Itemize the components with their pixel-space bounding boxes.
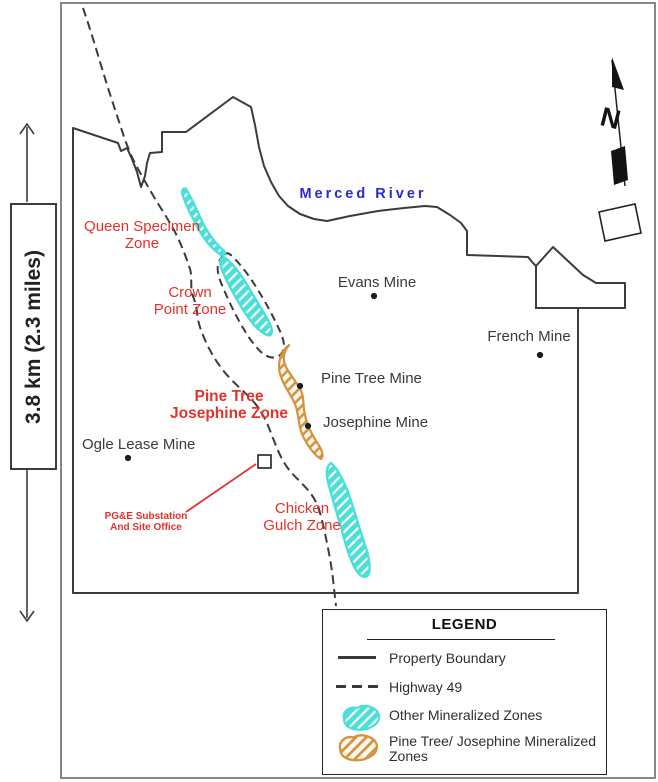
ogle-lease-mine-dot [125,455,131,461]
north-arrow-icon: N [597,57,628,186]
queen-specimen-zone-label: Queen Specimen Zone [84,218,200,252]
substation-line1: PG&E Substation [105,511,188,522]
pine-tree-josephine-zone-label: Pine Tree Josephine Zone [170,388,288,422]
legend-item-other-zones: Other Mineralized Zones [389,708,542,723]
legend-title-underline [367,639,555,640]
legend-solid-line-swatch [338,656,376,659]
legend-title: LEGEND [323,616,606,633]
pine-tree-mine-label: Pine Tree Mine [321,370,422,387]
chicken-gulch-line1: Chicken [263,500,341,517]
crown-point-zone-label: Crown Point Zone [154,284,227,318]
legend-cyan-blob-swatch [339,703,383,733]
pine-tree-mine-dot [297,383,303,389]
josephine-mine-label: Josephine Mine [323,414,428,431]
substation-leader-line [186,464,256,512]
legend-orange-blob-swatch [335,732,381,764]
legend: LEGEND Property Boundary Highway 49 Othe… [322,609,607,775]
substation-line2: And Site Office [105,522,188,533]
evans-mine-label: Evans Mine [338,274,416,291]
chicken-gulch-line2: Gulch Zone [263,517,341,534]
french-mine-label: French Mine [487,328,570,345]
survey-square [599,204,641,241]
legend-item-property-boundary: Property Boundary [389,651,506,666]
scale-label: 3.8 km (2.3 miles) [22,250,46,424]
crown-point-line2: Point Zone [154,301,227,318]
merced-river-label: Merced River [299,186,426,203]
ptj-line1: Pine Tree [170,388,288,405]
queen-specimen-line2: Zone [84,235,200,252]
property-boundary-east-parcel [536,266,578,308]
crown-point-zone-area [220,258,271,336]
chicken-gulch-zone-label: Chicken Gulch Zone [263,500,341,534]
mine-property-map: N 3.8 km (2.3 miles) Merced River Queen … [0,0,658,782]
ogle-lease-mine-label: Ogle Lease Mine [82,436,195,453]
evans-mine-dot [371,293,377,299]
legend-item-ptj-zones: Pine Tree/ Josephine Mineralized Zones [389,734,597,764]
substation-label: PG&E Substation And Site Office [105,511,188,533]
legend-dashed-line-swatch [336,685,380,688]
queen-specimen-line1: Queen Specimen [84,218,200,235]
scale-bar: 3.8 km (2.3 miles) [10,203,57,470]
french-mine-dot [537,352,543,358]
substation-square-marker [258,455,271,468]
crown-point-line1: Crown [154,284,227,301]
josephine-mine-dot [305,423,311,429]
legend-item-highway-49: Highway 49 [389,680,462,695]
ptj-line2: Josephine Zone [170,405,288,422]
